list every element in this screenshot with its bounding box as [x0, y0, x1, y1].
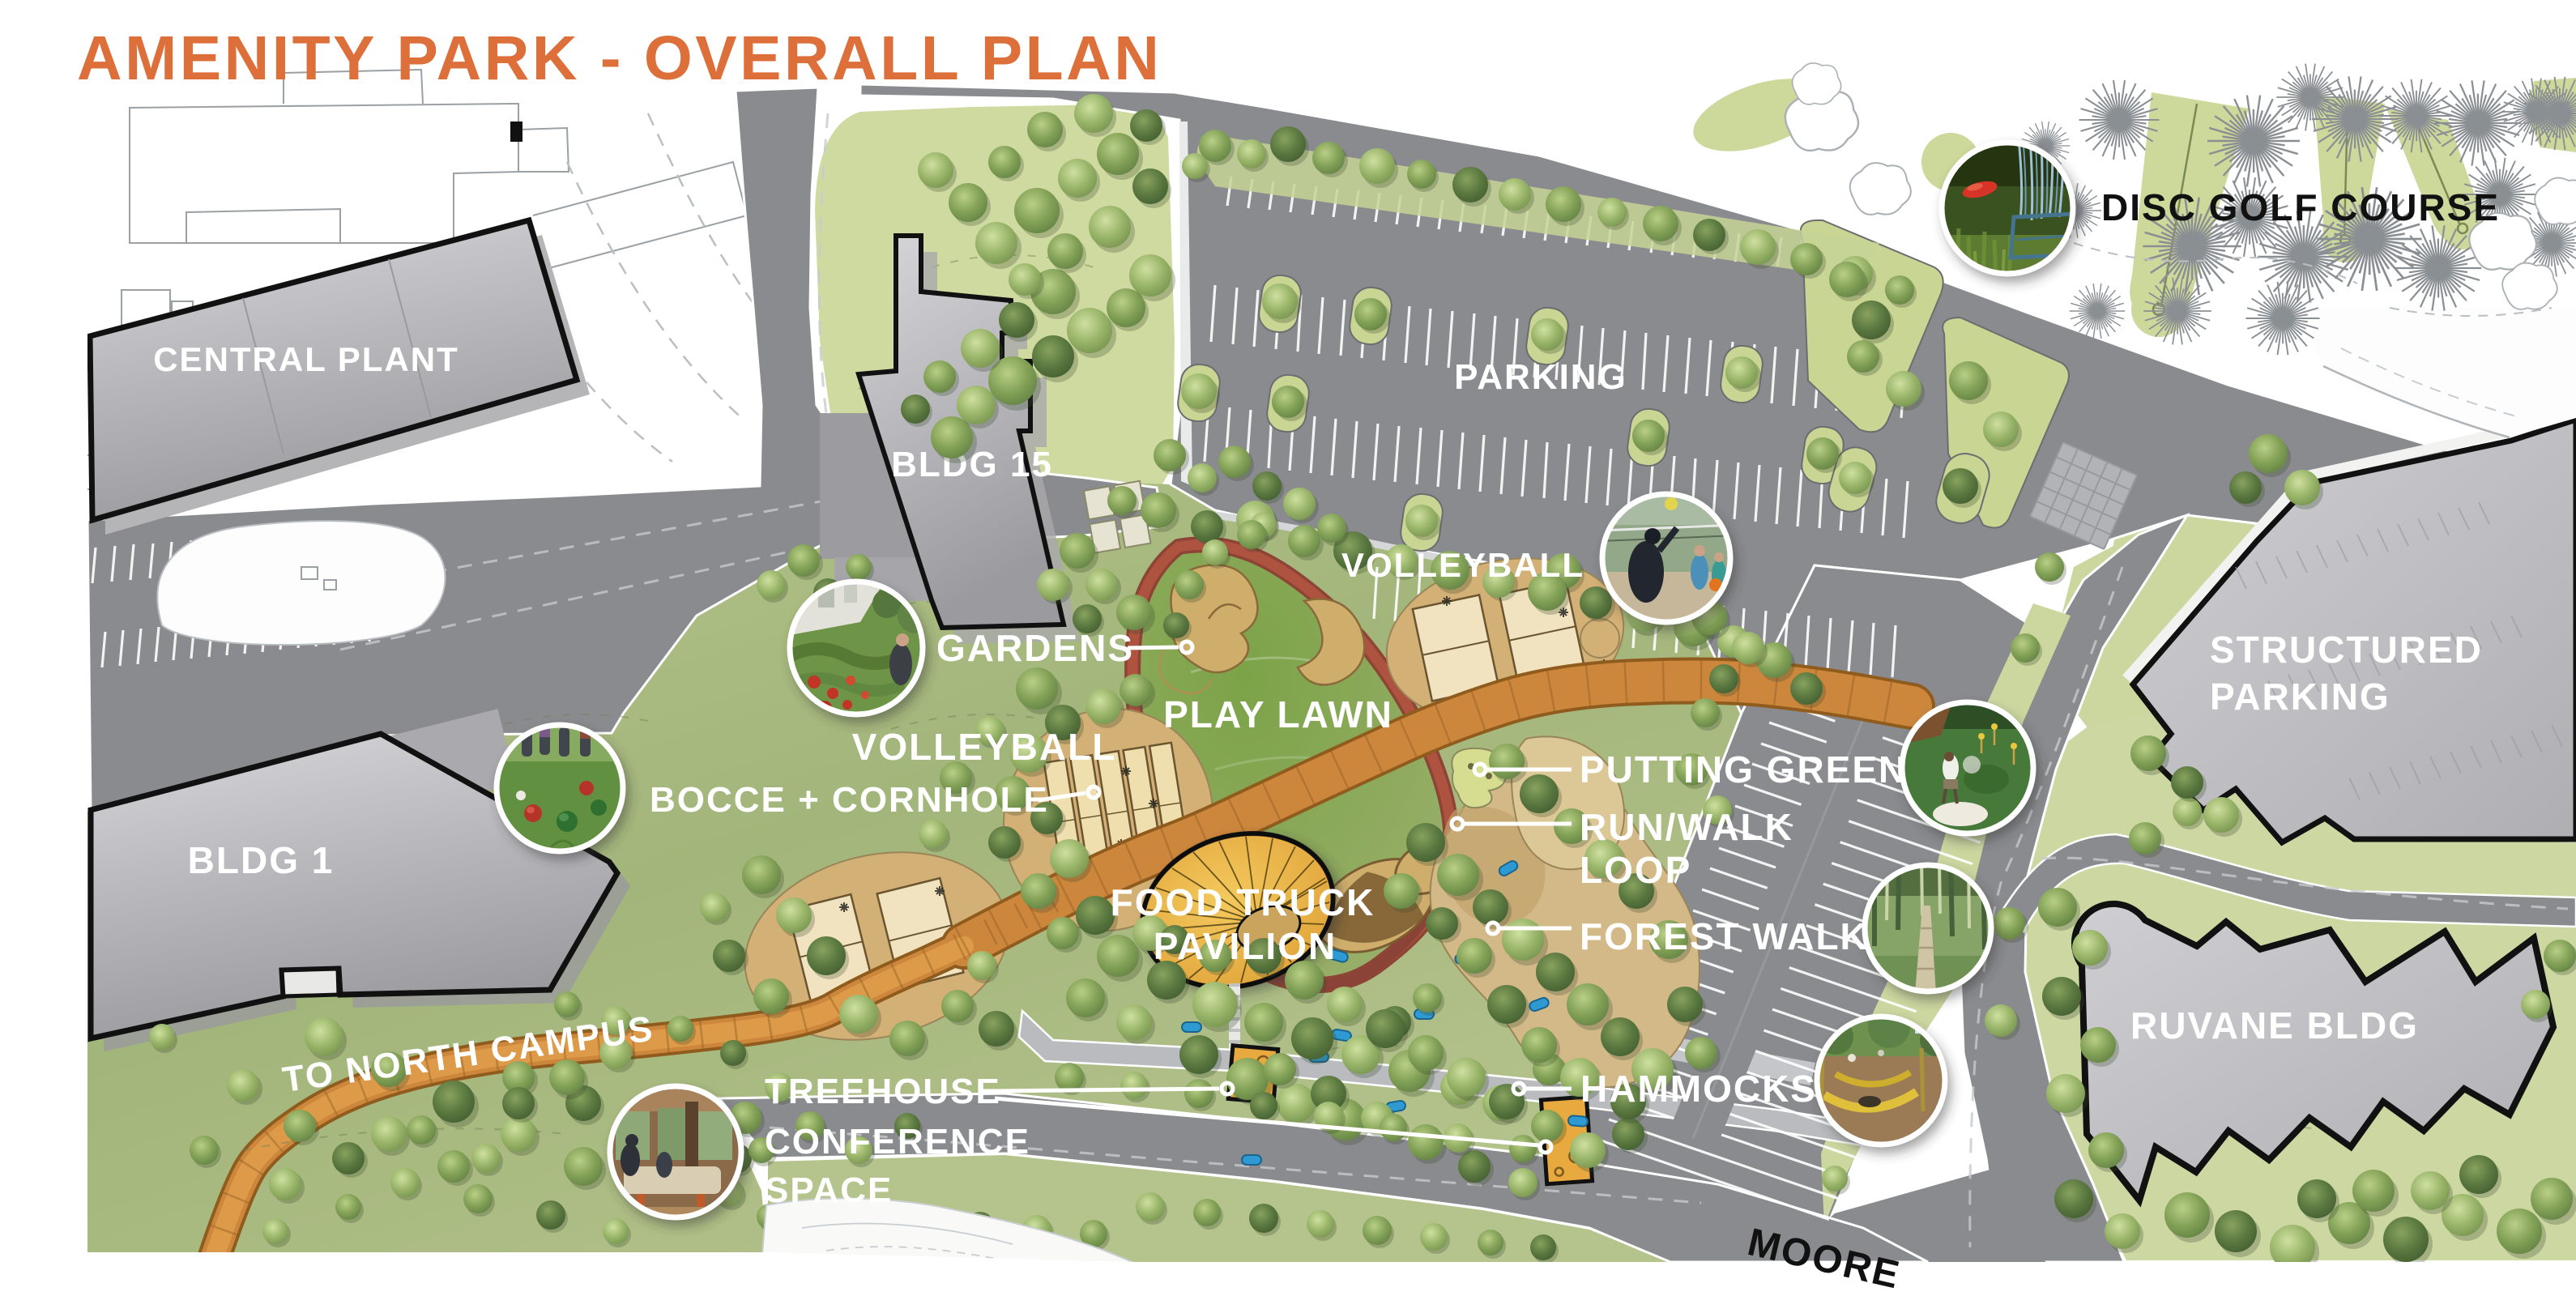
svg-text:SPACE: SPACE: [765, 1170, 893, 1210]
svg-text:FOOD TRUCK: FOOD TRUCK: [1111, 881, 1375, 923]
svg-text:TREEHOUSE: TREEHOUSE: [765, 1072, 1001, 1111]
svg-text:PAVILION: PAVILION: [1154, 925, 1337, 967]
svg-text:DISC GOLF COURSE: DISC GOLF COURSE: [2101, 186, 2500, 228]
svg-text:VOLLEYBALL: VOLLEYBALL: [1341, 546, 1584, 584]
svg-text:CENTRAL PLANT: CENTRAL PLANT: [153, 340, 459, 378]
svg-text:BLDG 1: BLDG 1: [188, 839, 335, 881]
svg-text:PARKING: PARKING: [1454, 357, 1627, 397]
svg-text:PARKING: PARKING: [2210, 676, 2390, 718]
svg-text:PLAY LAWN: PLAY LAWN: [1163, 693, 1393, 735]
svg-text:HAMMOCKS: HAMMOCKS: [1580, 1068, 1817, 1110]
svg-text:LOOP: LOOP: [1580, 849, 1691, 891]
svg-text:GARDENS: GARDENS: [936, 627, 1134, 669]
svg-text:FOREST WALK: FOREST WALK: [1580, 915, 1869, 957]
svg-text:PUTTING GREEN: PUTTING GREEN: [1580, 748, 1907, 791]
svg-text:CONFERENCE: CONFERENCE: [765, 1122, 1030, 1162]
svg-text:RUVANE BLDG: RUVANE BLDG: [2130, 1004, 2419, 1047]
svg-text:AMENITY PARK - OVERALL PLAN: AMENITY PARK - OVERALL PLAN: [77, 23, 1162, 93]
svg-text:STRUCTURED: STRUCTURED: [2210, 629, 2483, 671]
svg-text:RUN/WALK: RUN/WALK: [1580, 806, 1793, 848]
svg-text:VOLLEYBALL: VOLLEYBALL: [852, 726, 1117, 768]
svg-text:BOCCE + CORNHOLE: BOCCE + CORNHOLE: [650, 780, 1049, 820]
